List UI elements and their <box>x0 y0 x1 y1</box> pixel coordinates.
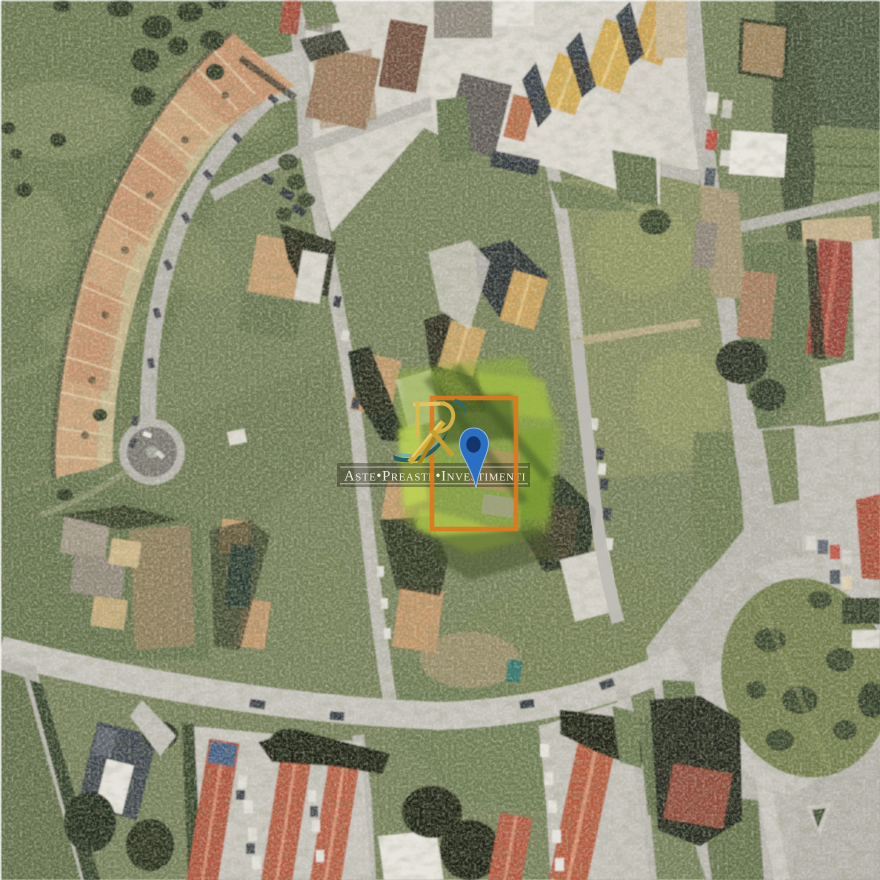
svg-text:Aste•Preaste•Investimenti: Aste•Preaste•Investimenti <box>344 469 526 485</box>
